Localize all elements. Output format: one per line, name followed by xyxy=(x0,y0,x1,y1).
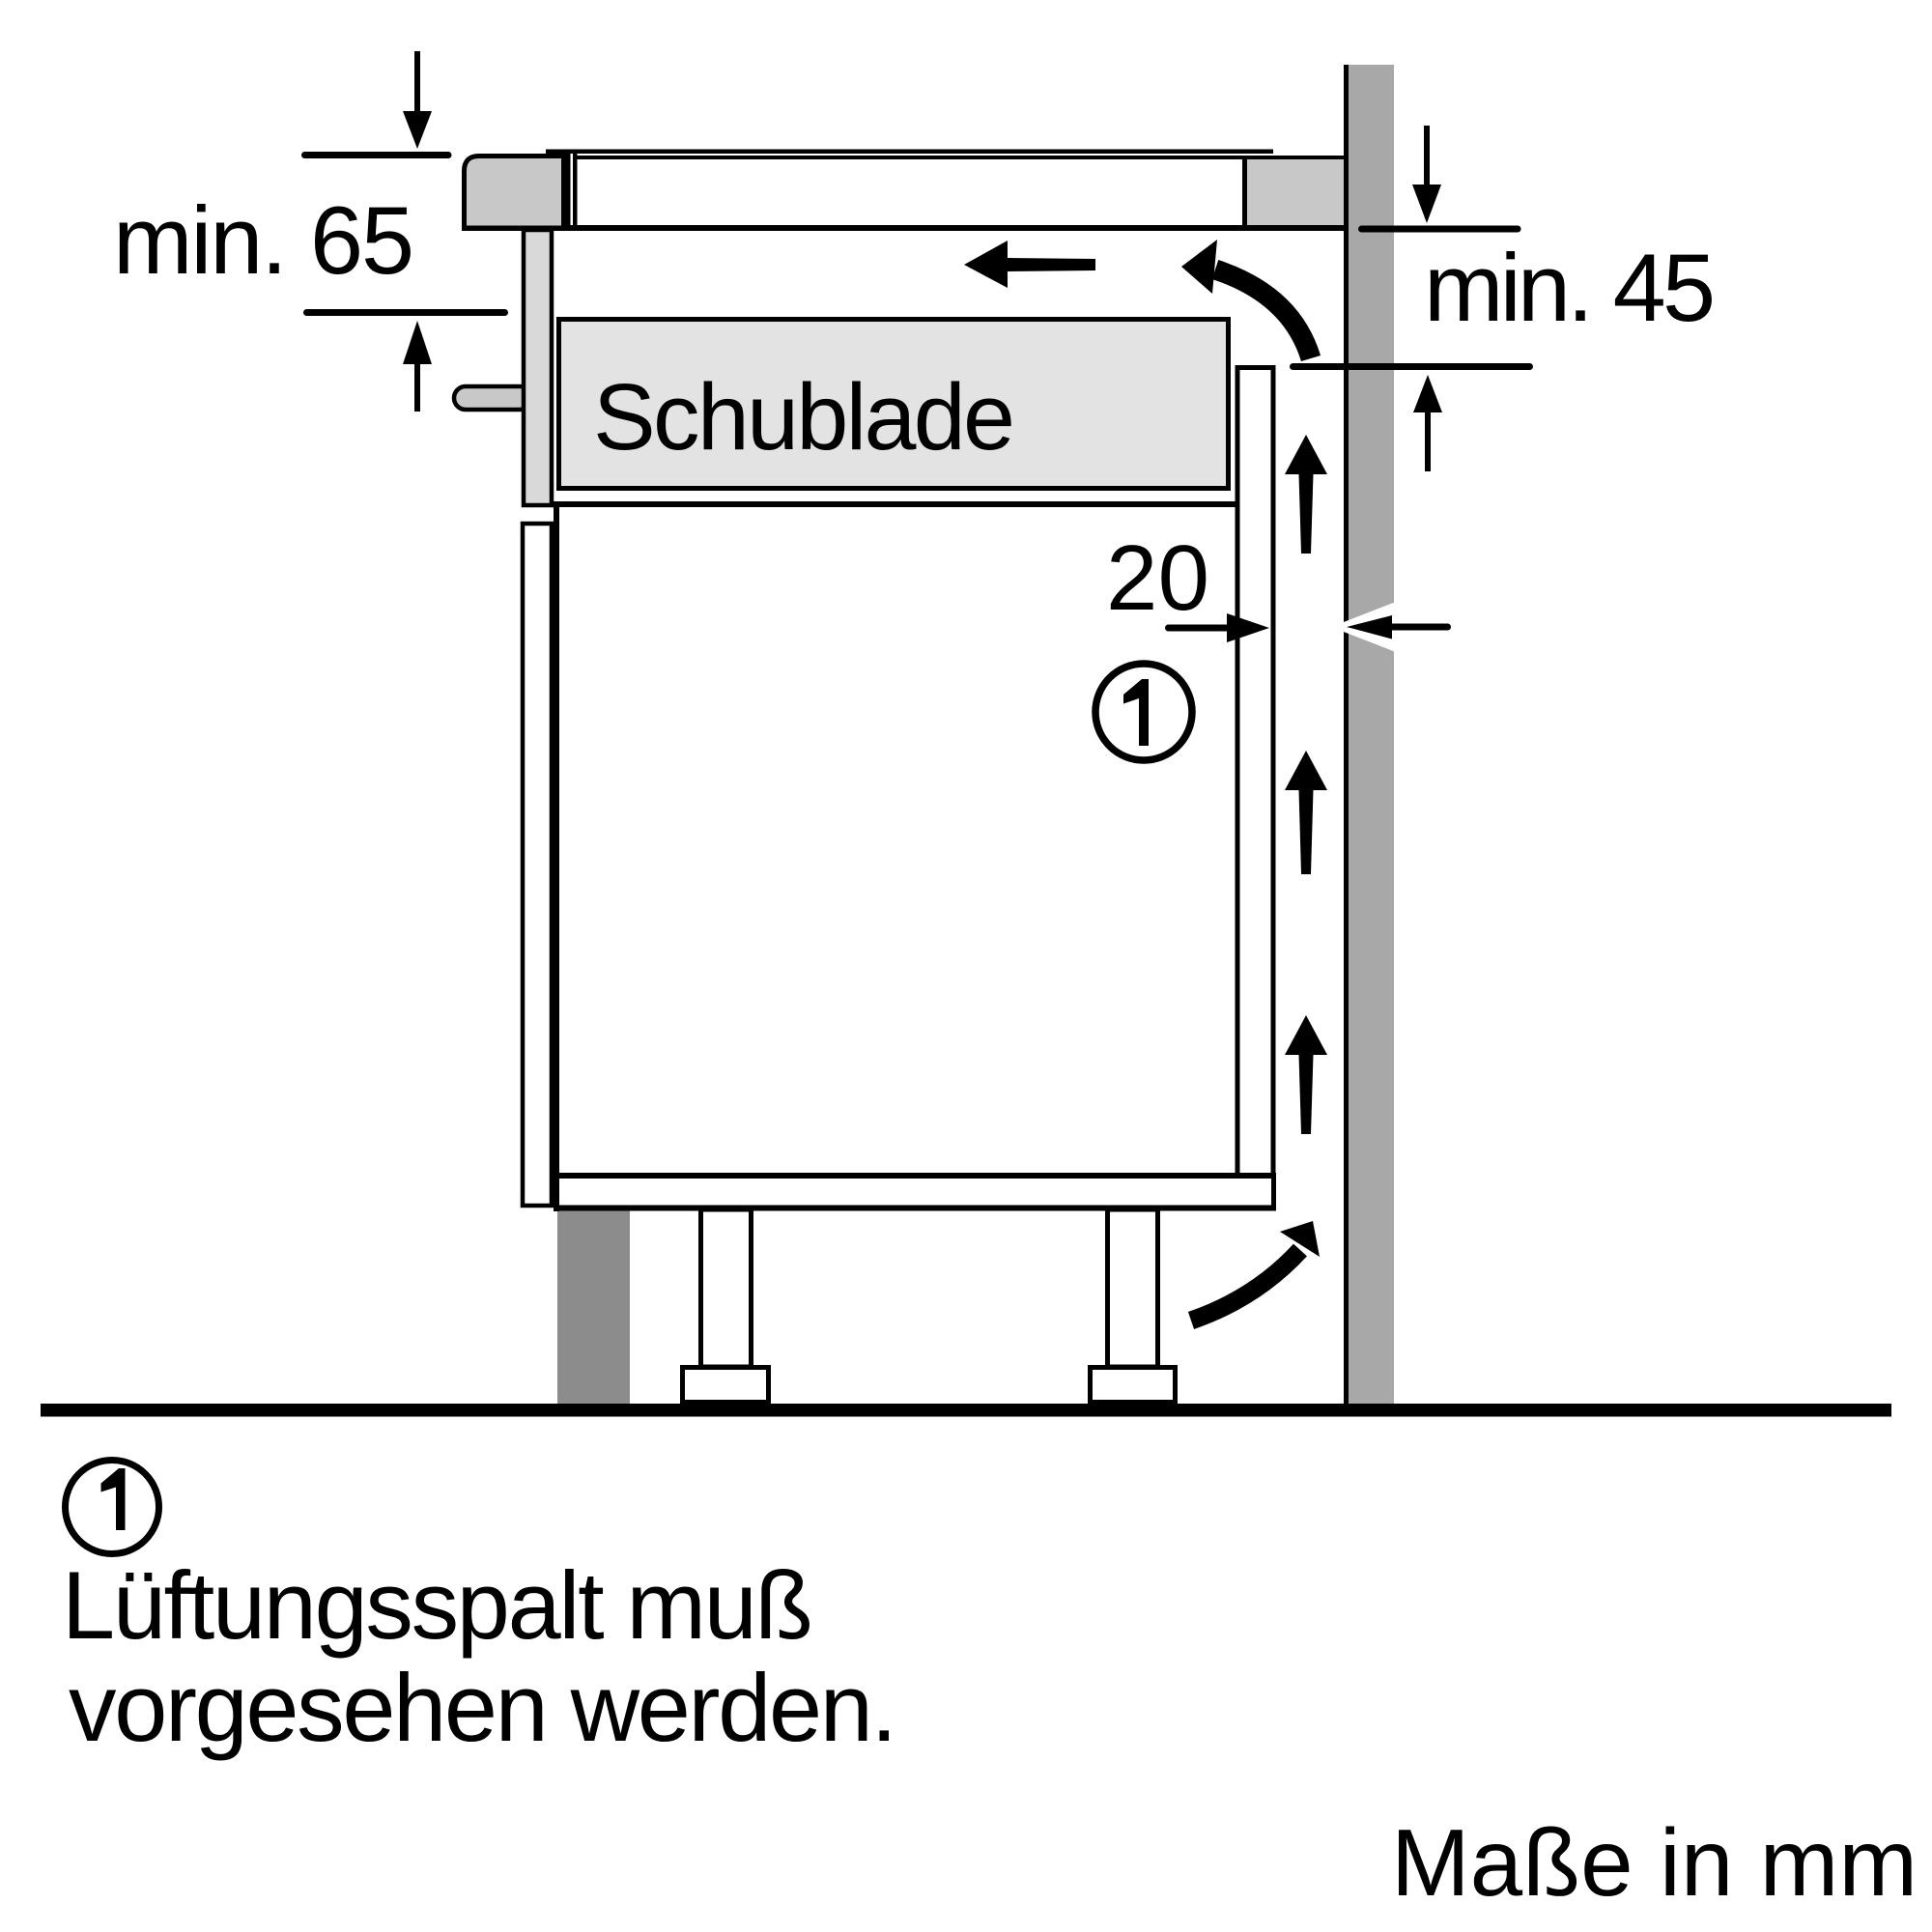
svg-text:Schublade: Schublade xyxy=(593,364,1015,469)
svg-text:20: 20 xyxy=(1106,526,1209,630)
svg-text:vorgesehen werden.: vorgesehen werden. xyxy=(69,1654,897,1761)
svg-text:Maße in mm: Maße in mm xyxy=(1391,1809,1918,1916)
svg-text:Lüftungsspalt muß: Lüftungsspalt muß xyxy=(62,1551,813,1659)
svg-text:min. 45: min. 45 xyxy=(1424,234,1716,341)
svg-text:min. 65: min. 65 xyxy=(113,186,414,294)
